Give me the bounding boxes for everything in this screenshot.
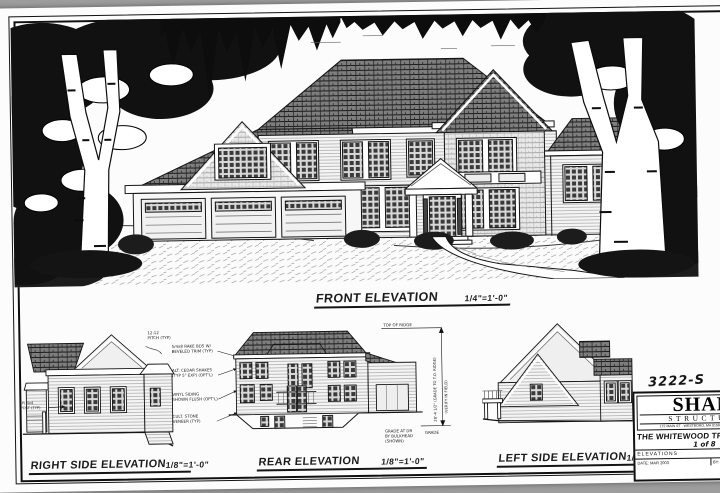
front-elevation-scale: 1/4"=1'-0" [464,293,508,304]
drawing-sheet: FRONT ELEVATION 1/4"=1'-0" [0,0,720,493]
firm-logo: SHANE STRUCTURES 172 MAIN ST · WESTBORO,… [636,393,720,430]
firm-name: SHANE [637,395,720,414]
photo-of-architectural-sheet: { "front": { "label": "FRONT ELEVATION",… [0,0,720,492]
tree-canopy-band-2 [340,13,545,42]
dim-verify-text: (VERIFY IN FIELD) [443,380,449,414]
dim-grade: GRADE [425,430,440,435]
rear-elevation-drawing: 5/4x8 RAKE BDS W/ BEVELED TRIM (TYP) ALT… [169,317,471,456]
right-side-title: RIGHT SIDE ELEVATION [30,458,166,472]
rear-note-3b: SHOWN FLUSH (OPT'L) [172,396,218,402]
front-elevation-title: FRONT ELEVATION [315,290,438,306]
dim-top-of-ridge: TOP OF RIDGE [382,322,412,327]
right-pitch-note-2: PITCH (TYP) [147,335,171,340]
rear-title: REAR ELEVATION [258,455,360,469]
left-side-elevation-drawing [481,317,641,445]
job-number: 3222-S [648,373,706,391]
rear-scale: 1/8"=1'-0" [381,456,425,467]
rear-elevation-label: REAR ELEVATION 1/8"=1'-0" [257,454,428,472]
date-cell: DATE: MAR 2003 [635,458,710,466]
garage-doors [141,196,346,239]
right-post-note-1: (P) 4x4 [20,401,34,405]
rear-note-2b: (TYP 5" EXP) (OPT'L) [172,372,213,378]
left-side-title: LEFT SIDE ELEVATION [498,451,627,465]
drawn-by-cell: BY: SCOTT SHANE [710,457,720,465]
title-block-footer: DATE: MAR 2003 BY: SCOTT SHANE [635,456,720,466]
front-elevation-label: FRONT ELEVATION 1/4"=1'-0" [314,289,511,309]
right-side-elevation-drawing: 12:12 PITCH (TYP) (P) 4x4 POST (TYP) [19,326,183,455]
rear-note-4b: VENEER (TYP) [173,418,201,423]
right-post-note-2: POST (TYP) [20,406,41,410]
right-side-scale: 1/8"=1'-0" [165,459,209,470]
rear-corner-note-3: (SHOWN) [385,438,404,443]
project-name: THE WHITEWOOD TRADITIONAL [635,428,720,441]
dim-height-text: 28'-4 1/2" (GRADE TO T.O. RIDGE) [432,357,438,422]
right-side-elevation-label: RIGHT SIDE ELEVATION 1/8"=1'-0" [29,458,192,476]
front-elevation-drawing [10,11,698,288]
title-block: SHANE STRUCTURES 172 MAIN ST · WESTBORO,… [632,389,720,481]
rear-note-1b: BEVELED TRIM (TYP) [172,348,214,354]
